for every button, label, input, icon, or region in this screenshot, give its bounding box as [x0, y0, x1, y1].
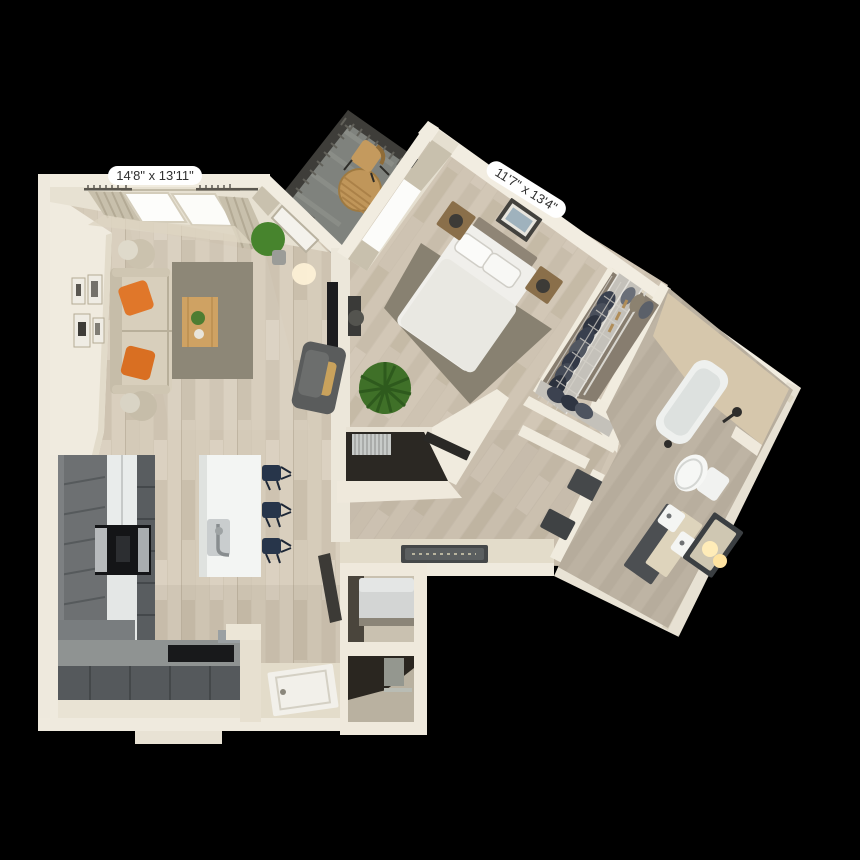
svg-text:14'8" x 13'11": 14'8" x 13'11"	[116, 168, 194, 183]
